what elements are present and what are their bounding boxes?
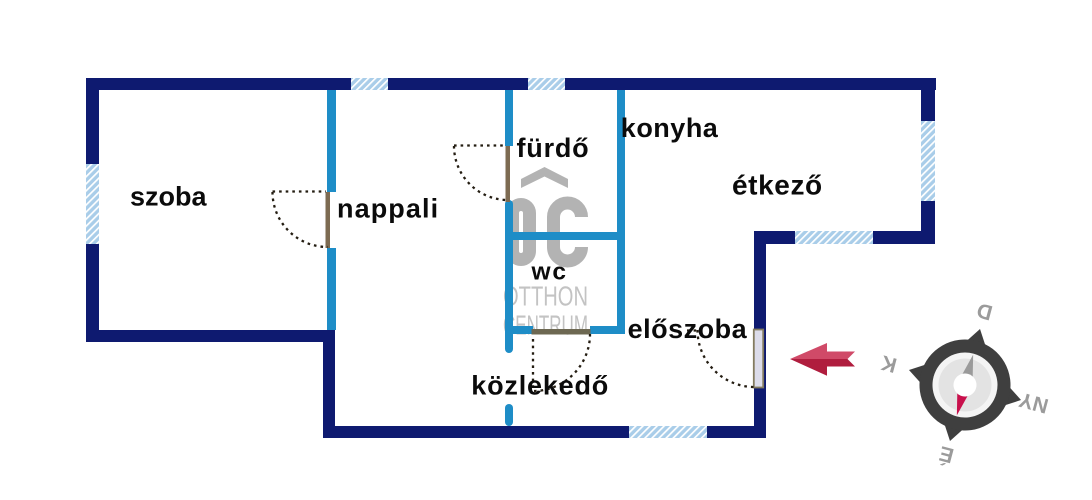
svg-text:nappali: nappali xyxy=(337,193,439,223)
svg-text:fürdő: fürdő xyxy=(517,133,590,163)
svg-text:szoba: szoba xyxy=(130,182,208,212)
svg-text:CENTRUM: CENTRUM xyxy=(503,310,588,341)
svg-text:étkező: étkező xyxy=(732,169,823,200)
svg-text:közlekedő: közlekedő xyxy=(471,371,609,401)
svg-text:wc: wc xyxy=(531,259,568,286)
svg-text:előszoba: előszoba xyxy=(628,314,748,344)
svg-text:konyha: konyha xyxy=(621,113,719,143)
